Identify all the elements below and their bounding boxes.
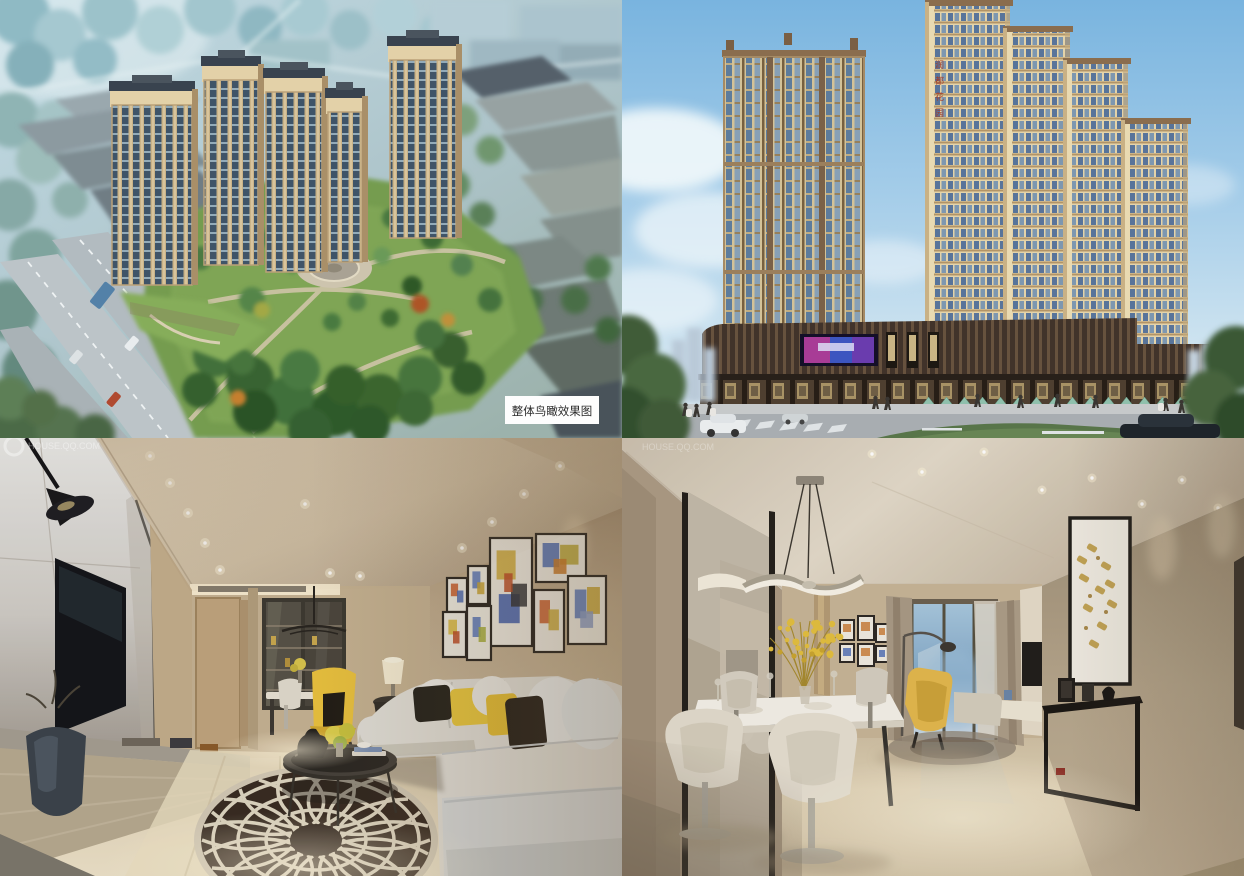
svg-text:都: 都 (935, 76, 944, 86)
svg-text:园: 园 (935, 108, 944, 118)
svg-text:HOUSE.QQ.COM: HOUSE.QQ.COM (28, 441, 100, 451)
svg-text:润: 润 (935, 59, 944, 70)
svg-text:花: 花 (935, 91, 944, 102)
svg-text:HOUSE.QQ.COM: HOUSE.QQ.COM (642, 442, 714, 452)
svg-text:整体鸟瞰效果图: 整体鸟瞰效果图 (512, 404, 593, 418)
